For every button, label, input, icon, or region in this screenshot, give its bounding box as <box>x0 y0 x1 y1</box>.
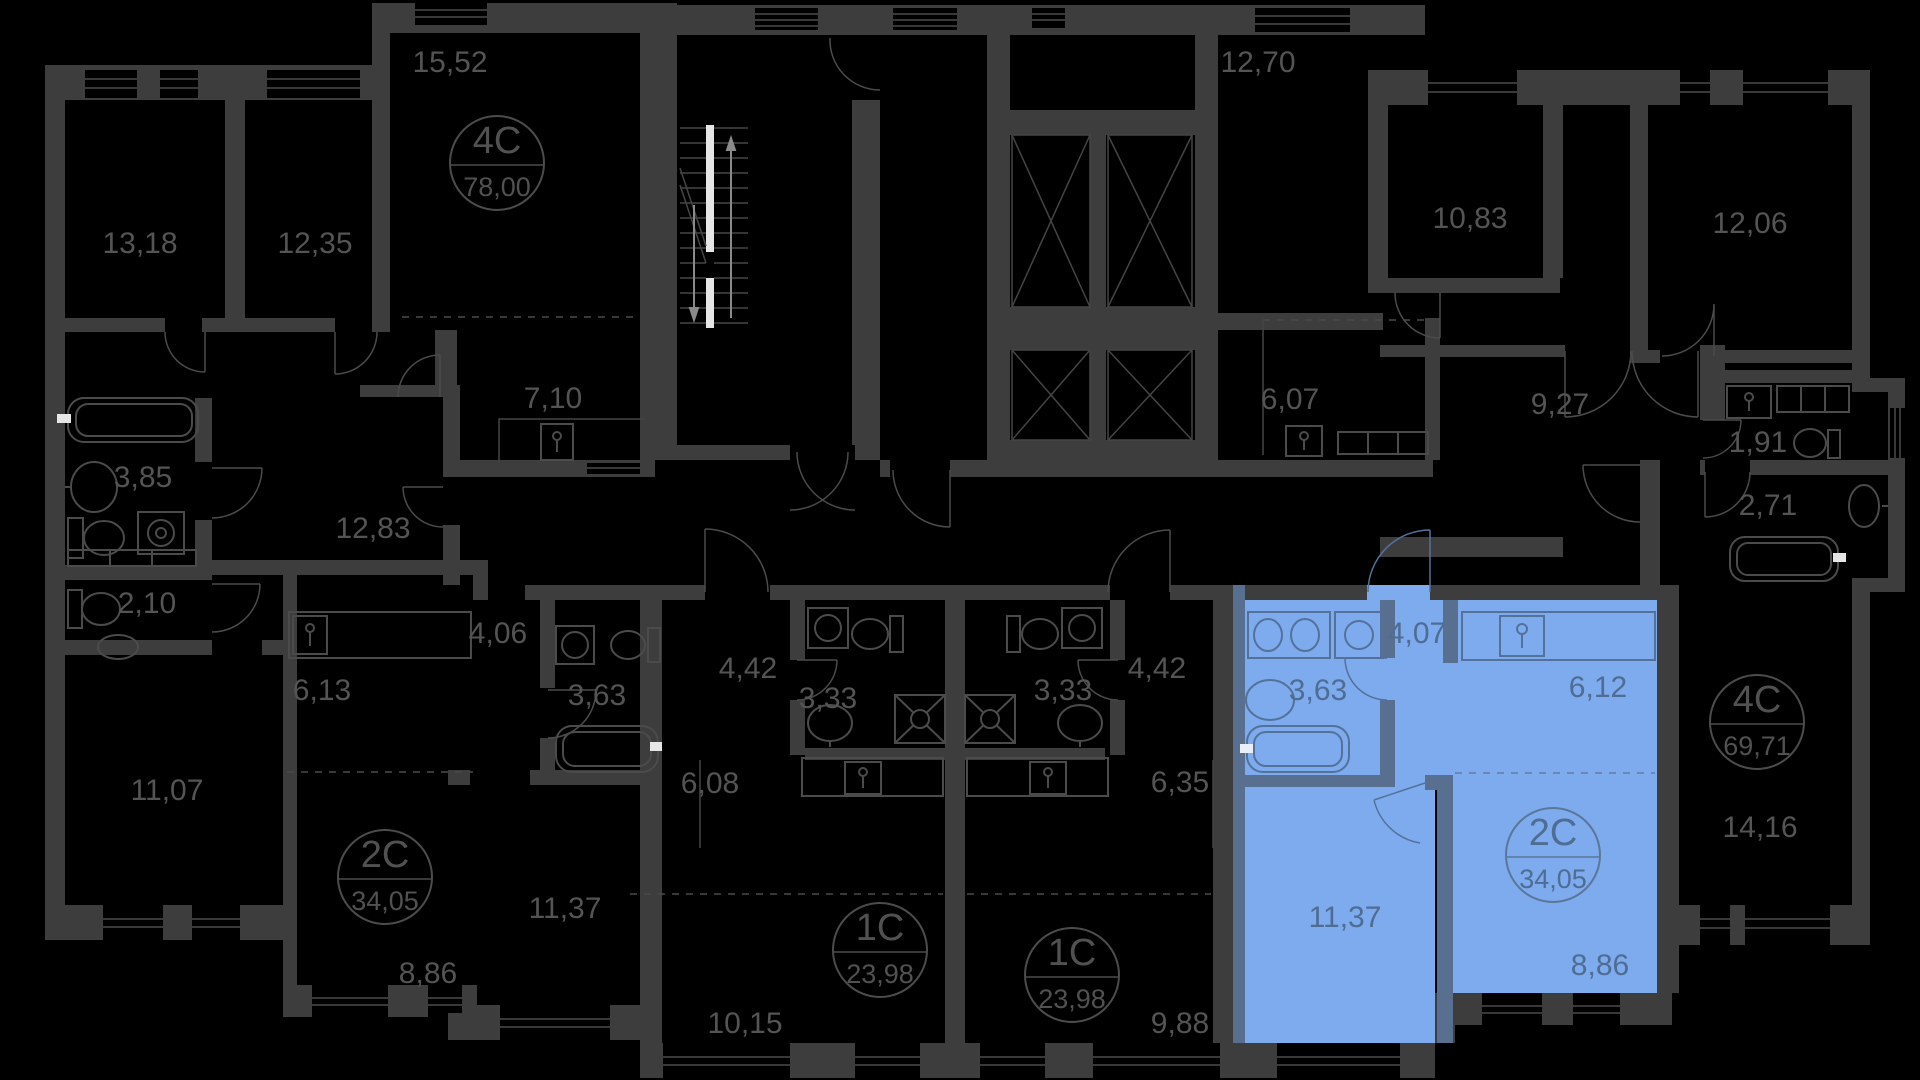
floor-plan-canvas: 13,1812,3515,527,103,8512,832,1011,076,1… <box>0 0 1920 1080</box>
room-area-label: 11,37 <box>529 892 602 925</box>
apartment-type-label: 4C <box>473 120 522 162</box>
apartment-type-label: 4C <box>1733 679 1782 721</box>
room-area-label: 4,06 <box>469 617 527 650</box>
apartment-type-label: 2C <box>1529 812 1578 854</box>
faucet-icon <box>1833 553 1846 562</box>
apartment-area-label: 78,00 <box>463 172 531 202</box>
room-area-label: 4,42 <box>719 652 777 685</box>
room-area-label: 6,07 <box>1261 383 1319 416</box>
room-area-label: 3,33 <box>799 682 857 715</box>
room-area-label: 6,12 <box>1569 671 1627 704</box>
room-area-label: 15,52 <box>412 46 487 79</box>
room-area-label: 3,33 <box>1034 674 1092 707</box>
faucet-icon <box>57 414 71 423</box>
apartment-type-label: 1C <box>1048 932 1097 974</box>
faucet-icon <box>1240 744 1253 753</box>
room-area-label: 2,10 <box>118 587 176 620</box>
apartment-type-label: 2C <box>361 834 410 876</box>
room-area-label: 6,13 <box>293 674 351 707</box>
room-area-label: 12,06 <box>1712 207 1787 240</box>
room-area-label: 1,91 <box>1729 426 1787 459</box>
room-area-label: 9,88 <box>1151 1007 1209 1040</box>
apartment-area-label: 34,05 <box>351 886 419 916</box>
room-area-label: 14,16 <box>1722 811 1797 844</box>
apartment-type-label: 1C <box>856 907 905 949</box>
room-area-label: 12,35 <box>277 227 352 260</box>
room-area-label: 6,08 <box>681 767 739 800</box>
apartment-area-label: 69,71 <box>1723 731 1791 761</box>
room-area-label: 10,83 <box>1432 202 1507 235</box>
room-area-label: 13,18 <box>102 227 177 260</box>
room-area-label: 11,37 <box>1309 901 1382 934</box>
room-area-label: 9,27 <box>1531 388 1589 421</box>
room-area-label: 8,86 <box>399 957 457 990</box>
apartment-area-label: 23,98 <box>1038 984 1106 1014</box>
room-area-label: 2,71 <box>1739 489 1797 522</box>
apartment-area-label: 34,05 <box>1519 864 1587 894</box>
room-area-label: 7,10 <box>524 382 582 415</box>
room-area-label: 6,35 <box>1151 766 1209 799</box>
room-area-label: 8,86 <box>1571 949 1629 982</box>
room-area-label: 12,70 <box>1220 46 1295 79</box>
apartment-area-label: 23,98 <box>846 959 914 989</box>
faucet-icon <box>650 742 662 751</box>
room-area-label: 3,63 <box>1289 674 1347 707</box>
room-area-label: 4,07 <box>1388 617 1446 650</box>
room-area-label: 3,63 <box>568 679 626 712</box>
room-area-label: 11,07 <box>131 774 204 807</box>
room-area-label: 12,83 <box>335 512 410 545</box>
floor-plan: 13,1812,3515,527,103,8512,832,1011,076,1… <box>0 0 1920 1080</box>
room-area-label: 10,15 <box>707 1007 782 1040</box>
room-area-label: 3,85 <box>114 461 172 494</box>
room-area-label: 4,42 <box>1128 652 1186 685</box>
